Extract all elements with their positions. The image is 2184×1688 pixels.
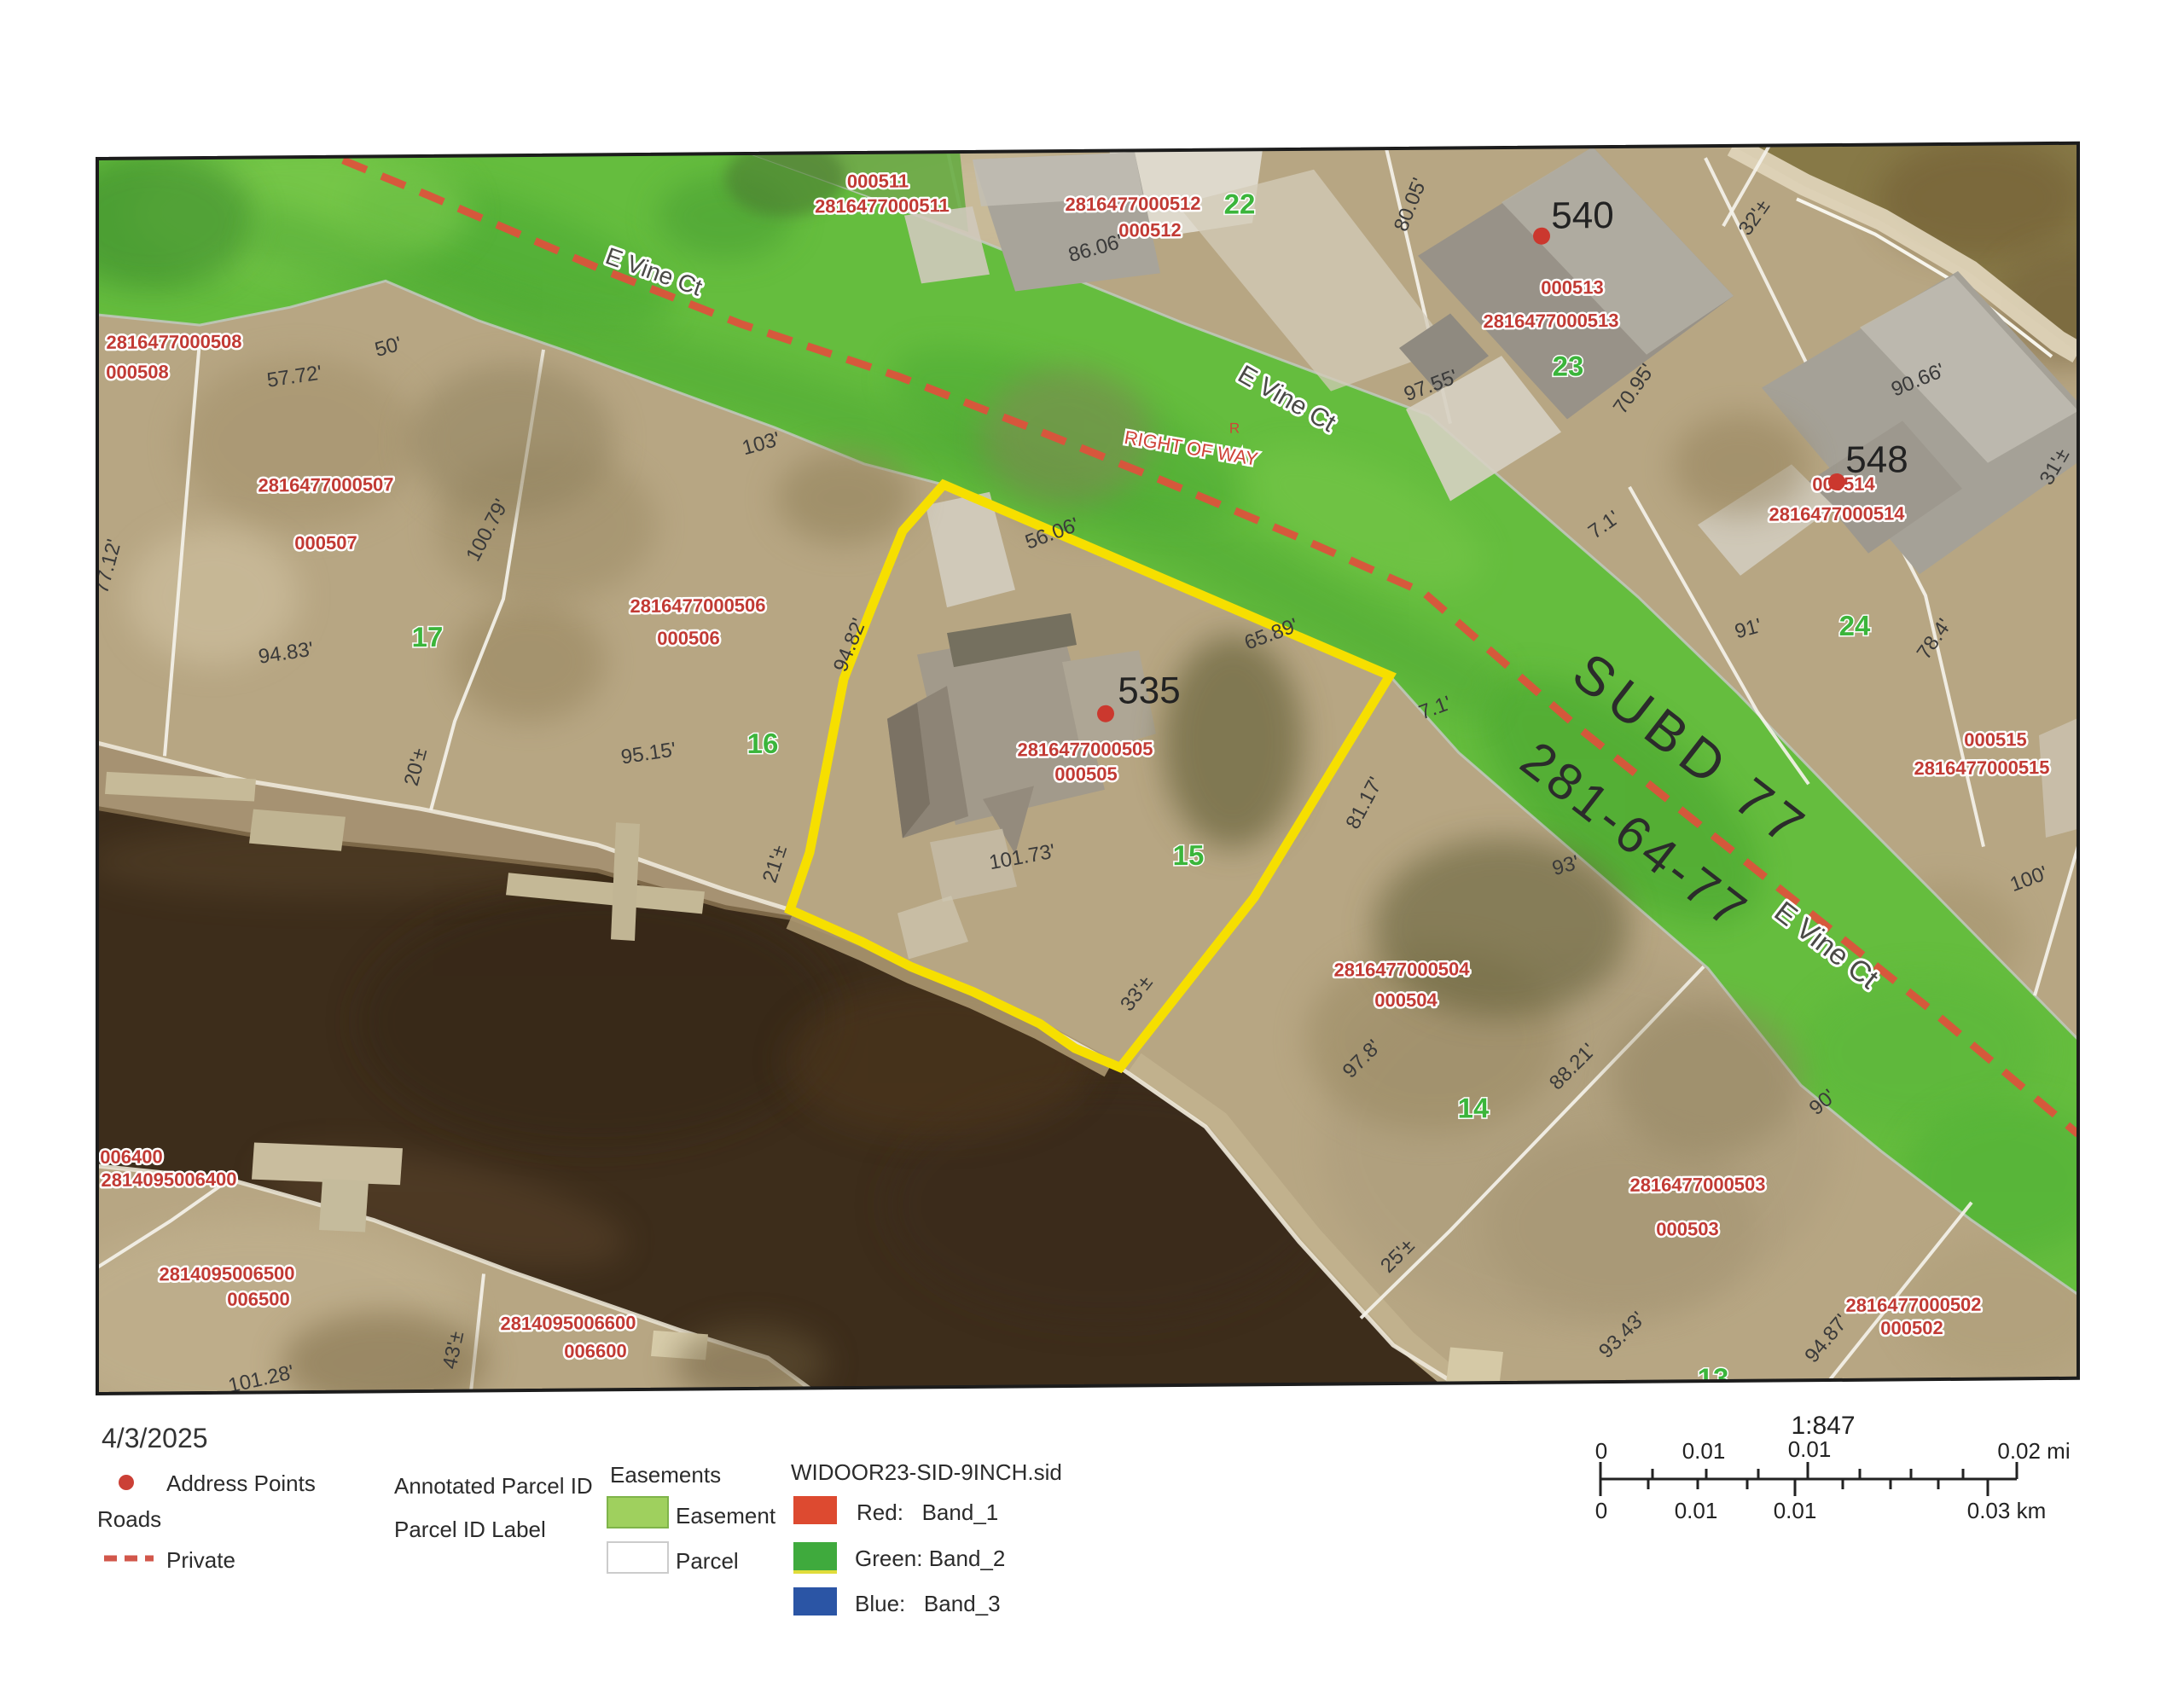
svg-text:000508: 000508 bbox=[106, 361, 168, 383]
svg-text:540: 540 bbox=[1551, 194, 1613, 237]
svg-text:0.02 mi: 0.02 mi bbox=[1997, 1438, 2070, 1464]
svg-text:000511: 000511 bbox=[847, 171, 909, 193]
svg-text:16: 16 bbox=[747, 728, 779, 759]
svg-text:4/3/2025: 4/3/2025 bbox=[102, 1423, 208, 1453]
svg-text:15: 15 bbox=[1173, 839, 1205, 871]
svg-text:R: R bbox=[1229, 420, 1240, 436]
svg-text:2816477000513: 2816477000513 bbox=[1483, 310, 1618, 332]
svg-text:000505: 000505 bbox=[1054, 763, 1117, 786]
svg-text:0.03 km: 0.03 km bbox=[1967, 1498, 2047, 1523]
svg-text:006400: 006400 bbox=[100, 1146, 162, 1168]
svg-text:2816477000514: 2816477000514 bbox=[1769, 502, 1905, 525]
svg-text:WIDOOR23-SID-9INCH.sid: WIDOOR23-SID-9INCH.sid bbox=[791, 1459, 1062, 1485]
svg-text:Annotated Parcel ID: Annotated Parcel ID bbox=[394, 1473, 593, 1499]
svg-text:000515: 000515 bbox=[1964, 728, 2026, 751]
svg-text:Address Points: Address Points bbox=[166, 1470, 316, 1496]
svg-text:2816477000515: 2816477000515 bbox=[1914, 757, 2049, 779]
svg-text:0.01: 0.01 bbox=[1675, 1498, 1718, 1523]
svg-text:000507: 000507 bbox=[294, 532, 357, 554]
svg-text:2814095006400: 2814095006400 bbox=[101, 1169, 236, 1191]
svg-text:Roads: Roads bbox=[97, 1506, 161, 1532]
svg-text:2816477000504: 2816477000504 bbox=[1333, 958, 1470, 980]
svg-text:548: 548 bbox=[1845, 438, 1908, 481]
svg-text:0: 0 bbox=[1595, 1438, 1607, 1464]
svg-text:2816477000512: 2816477000512 bbox=[1065, 193, 1200, 215]
svg-text:006500: 006500 bbox=[227, 1288, 289, 1310]
svg-text:2814095006600: 2814095006600 bbox=[500, 1312, 636, 1334]
svg-text:2816477000502: 2816477000502 bbox=[1845, 1294, 1981, 1316]
svg-text:Green: Band_2: Green: Band_2 bbox=[855, 1546, 1005, 1571]
svg-text:2816477000511: 2816477000511 bbox=[815, 194, 950, 217]
svg-text:22: 22 bbox=[1224, 188, 1256, 219]
svg-text:2816477000503: 2816477000503 bbox=[1629, 1174, 1765, 1196]
svg-text:23: 23 bbox=[1553, 350, 1584, 381]
svg-text:Easements: Easements bbox=[610, 1462, 721, 1488]
svg-text:Parcel: Parcel bbox=[676, 1548, 739, 1574]
svg-text:006600: 006600 bbox=[564, 1340, 626, 1362]
svg-text:Easement: Easement bbox=[676, 1503, 776, 1528]
svg-text:17: 17 bbox=[412, 621, 444, 653]
svg-text:2814095006500: 2814095006500 bbox=[159, 1262, 294, 1285]
svg-text:0.01: 0.01 bbox=[1788, 1436, 1832, 1462]
svg-text:Private: Private bbox=[166, 1547, 235, 1573]
svg-text:000506: 000506 bbox=[657, 627, 719, 649]
svg-text:000513: 000513 bbox=[1541, 276, 1603, 299]
svg-text:0: 0 bbox=[1595, 1498, 1607, 1523]
svg-text:000503: 000503 bbox=[1656, 1218, 1718, 1240]
svg-text:Red: Band_1: Red: Band_1 bbox=[857, 1499, 998, 1525]
svg-text:535: 535 bbox=[1118, 670, 1180, 712]
svg-text:000504: 000504 bbox=[1374, 989, 1438, 1012]
svg-text:2816477000505: 2816477000505 bbox=[1017, 738, 1153, 760]
svg-text:000512: 000512 bbox=[1118, 219, 1181, 241]
svg-text:14: 14 bbox=[1458, 1092, 1490, 1123]
svg-text:0.01: 0.01 bbox=[1774, 1498, 1817, 1523]
svg-text:2816477000506: 2816477000506 bbox=[630, 595, 765, 617]
svg-text:24: 24 bbox=[1839, 610, 1871, 641]
svg-text:2816477000508: 2816477000508 bbox=[106, 331, 241, 353]
svg-text:000502: 000502 bbox=[1880, 1317, 1943, 1339]
svg-text:Blue: Band_3: Blue: Band_3 bbox=[855, 1591, 1001, 1616]
svg-text:Parcel ID Label: Parcel ID Label bbox=[394, 1517, 546, 1542]
svg-text:0.01: 0.01 bbox=[1682, 1438, 1726, 1464]
svg-text:2816477000507: 2816477000507 bbox=[258, 473, 393, 496]
